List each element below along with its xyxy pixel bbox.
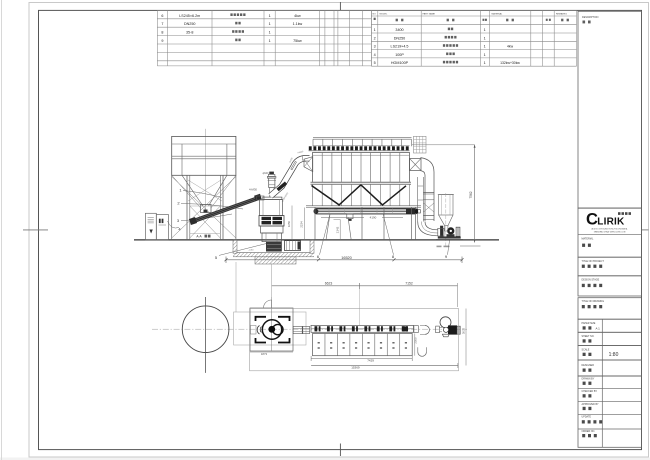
svg-text:5: 5 <box>374 61 376 65</box>
svg-text:DESIGN STAGE: DESIGN STAGE <box>582 278 600 281</box>
svg-text:1: 1 <box>269 39 271 43</box>
svg-text:8: 8 <box>161 31 163 35</box>
svg-text:DRAWN BY: DRAWN BY <box>582 378 595 381</box>
svg-text:4-M30: 4-M30 <box>249 188 257 192</box>
svg-text:1: 1 <box>484 53 486 57</box>
svg-text:MATERIAL: MATERIAL <box>582 238 594 241</box>
svg-text:A-A: A-A <box>196 235 202 239</box>
svg-text:9: 9 <box>161 39 163 43</box>
svg-text:1: 1 <box>484 28 486 32</box>
svg-text:NO: NO <box>373 14 377 16</box>
svg-text:PART NAME: PART NAME <box>423 13 436 16</box>
svg-text:HGM100P: HGM100P <box>391 61 409 65</box>
svg-text:16520: 16520 <box>341 256 352 260</box>
svg-text:1342: 1342 <box>335 226 339 233</box>
svg-text:DESCRIPTION: DESCRIPTION <box>582 16 599 19</box>
svg-text:3032: 3032 <box>461 327 465 334</box>
svg-text:15369: 15369 <box>351 365 360 369</box>
svg-text:CHECKED BY: CHECKED BY <box>582 390 598 393</box>
svg-text:1:80: 1:80 <box>609 352 619 358</box>
svg-text:1: 1 <box>269 31 271 35</box>
svg-text:DN250: DN250 <box>184 22 195 26</box>
svg-text:1: 1 <box>269 22 271 26</box>
svg-text:MATERIAL: MATERIAL <box>492 13 504 16</box>
svg-text:1.1kw: 1.1kw <box>293 22 303 26</box>
svg-text:SHANGHAI CHINA. WWW.CLIRIK.COM: SHANGHAI CHINA. WWW.CLIRIK.COM <box>594 230 626 233</box>
svg-text:TITLE OF PROJECT: TITLE OF PROJECT <box>582 260 605 263</box>
svg-text:1: 1 <box>374 28 376 32</box>
svg-text:4kw: 4kw <box>294 14 301 18</box>
svg-text:1: 1 <box>484 36 486 40</box>
svg-text:LS245×6.2m: LS245×6.2m <box>179 14 200 18</box>
svg-text:3400: 3400 <box>395 28 403 32</box>
svg-text:PAPER SIZE: PAPER SIZE <box>582 322 596 325</box>
svg-text:REMARKS: REMARKS <box>556 13 567 16</box>
svg-text:1873: 1873 <box>261 352 268 356</box>
svg-text:ORDER NO.: ORDER NO. <box>582 430 596 433</box>
svg-text:4: 4 <box>374 53 376 57</box>
svg-text:7: 7 <box>161 22 163 26</box>
svg-text:100P: 100P <box>395 53 404 57</box>
svg-text:DESIGNER: DESIGNER <box>582 364 595 367</box>
svg-text:UPDATE: UPDATE <box>582 416 592 419</box>
svg-text:A 1: A 1 <box>596 327 601 331</box>
svg-text:1: 1 <box>484 45 486 49</box>
svg-text:2: 2 <box>374 36 376 40</box>
svg-text:2234: 2234 <box>300 221 304 228</box>
svg-text:-0.60: -0.60 <box>249 250 255 252</box>
svg-text:DN250: DN250 <box>394 36 405 40</box>
svg-text:ADD:NO.19,FUQING RORD,PUDONG A: ADD:NO.19,FUQING RORD,PUDONG AREA, <box>592 228 628 231</box>
svg-text:75kw: 75kw <box>293 39 302 43</box>
svg-text:35-8: 35-8 <box>186 31 193 35</box>
svg-text:SHEET NO.: SHEET NO. <box>582 335 595 338</box>
svg-text:2300: 2300 <box>413 337 417 344</box>
svg-text:1: 1 <box>484 61 486 65</box>
svg-text:LS219×4.5: LS219×4.5 <box>391 45 409 49</box>
svg-text:7152: 7152 <box>405 281 413 285</box>
svg-text:7562: 7562 <box>469 191 473 198</box>
svg-text:TITLE OF DRAWING: TITLE OF DRAWING <box>582 300 605 303</box>
svg-text:LIRIK: LIRIK <box>597 216 625 227</box>
svg-text:1650: 1650 <box>287 220 291 227</box>
svg-text:SCALE: SCALE <box>582 348 590 351</box>
svg-text:APPROVED BY: APPROVED BY <box>582 403 600 406</box>
svg-text:6: 6 <box>161 14 163 18</box>
svg-text:MODEL: MODEL <box>380 14 389 16</box>
svg-text:4kw: 4kw <box>507 45 514 49</box>
svg-text:6623: 6623 <box>325 281 333 285</box>
svg-text:4190: 4190 <box>370 216 377 220</box>
svg-text:3: 3 <box>374 45 376 49</box>
svg-text:C: C <box>586 211 598 229</box>
svg-text:132kw+30kw: 132kw+30kw <box>500 61 520 65</box>
svg-text:1: 1 <box>269 14 271 18</box>
svg-text:7429: 7429 <box>367 358 374 362</box>
